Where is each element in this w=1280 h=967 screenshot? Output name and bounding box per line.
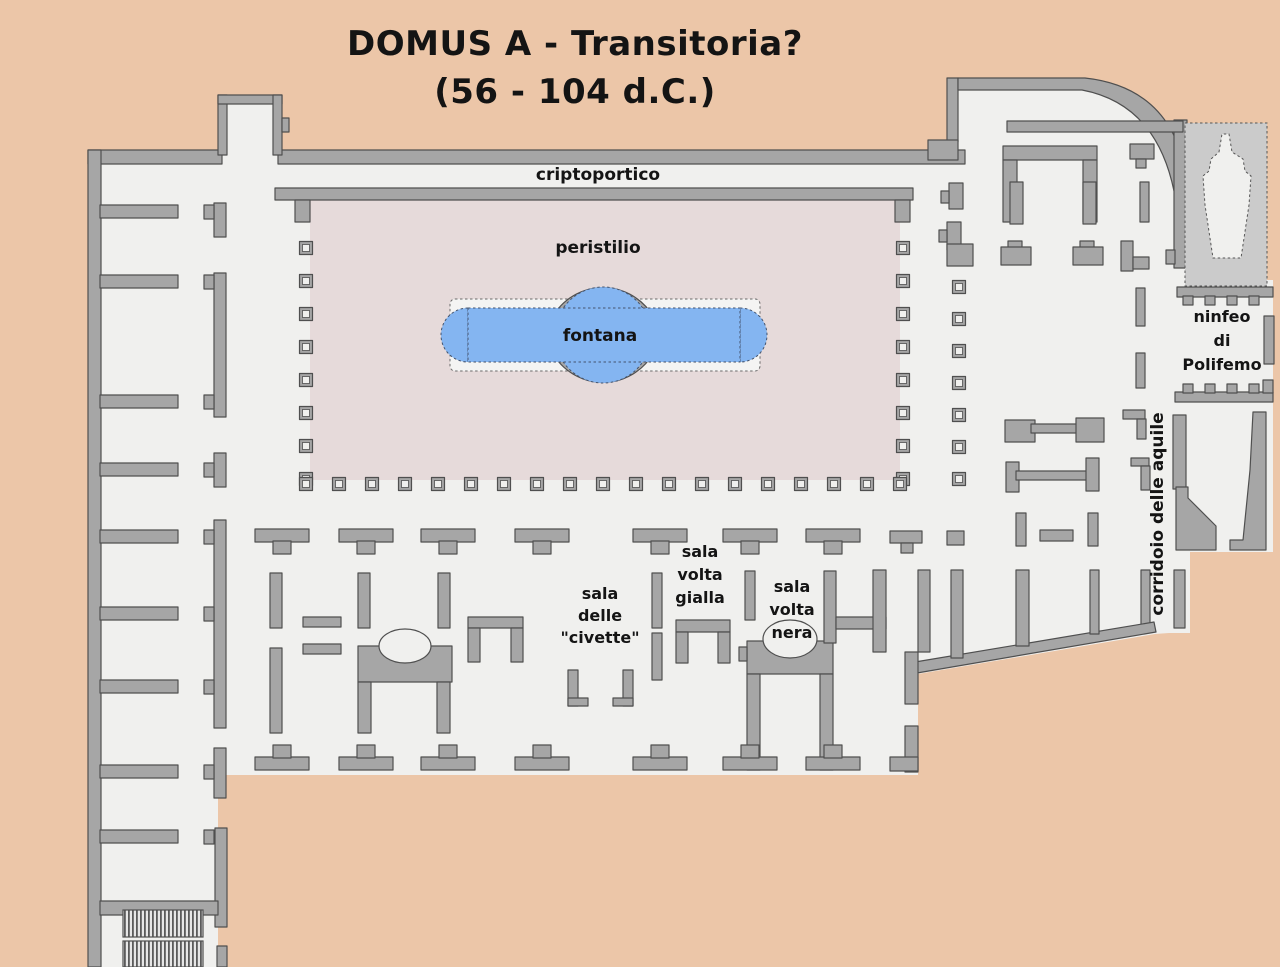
wall-wing-bar [1007,121,1183,132]
plan-title-line1: DOMUS A - Transitoria? [347,24,803,64]
t-pillar-top-stem [651,541,669,554]
t-pillar-top-bar [515,529,569,542]
pillar [890,531,922,543]
wall-cryptoporticus-south [275,188,913,200]
wall-cren-tooth [1205,296,1215,305]
doorway-nub [204,275,214,289]
t-pillar-bottom-stem [273,745,291,758]
wall-cren-tooth [1249,384,1259,393]
wall-annex-nub [282,118,289,132]
t-pillar-top-bar [421,529,475,542]
wall-bracket [468,617,523,628]
doorway-nub [204,765,214,779]
column-socket [534,481,541,488]
pillar [947,244,973,266]
column-socket [956,412,963,419]
label-line: nera [772,623,813,642]
pillar [1088,513,1098,546]
column-socket [897,481,904,488]
wall-room [745,571,755,620]
wall-room [824,571,836,643]
stair-flight-upper [123,910,203,937]
column-socket [956,476,963,483]
pillar [1136,353,1145,388]
wall-cren-tooth [1249,296,1259,305]
wall-annex-east [273,95,282,155]
column-socket [303,311,310,318]
wall-bracket [468,628,480,662]
wall-bracket [676,620,730,632]
pillar [939,230,947,242]
doorway-nub [204,205,214,219]
wall-cren-end [1263,380,1273,393]
pillar [1001,247,1031,265]
pillar [1123,410,1145,419]
t-pillar-bottom-stem [651,745,669,758]
column-socket [900,443,907,450]
pillar [1010,182,1023,224]
wall-room [270,573,282,628]
column-socket [303,410,310,417]
room-divider-wall [100,395,178,408]
column-socket [956,348,963,355]
doorway-nub [204,530,214,544]
wall-spine [214,203,226,237]
label-line: sala [774,577,811,596]
column-socket [765,481,772,488]
t-pillar-bottom-bar [633,757,687,770]
doorway-nub [204,395,214,409]
column-socket [303,344,310,351]
wall-L [568,698,588,706]
doorway-nub [204,607,214,621]
room-divider-wall [100,830,178,843]
label-line: delle [578,606,622,625]
t-pillar-bottom-bar [339,757,393,770]
stair-flight-lower [123,941,203,967]
t-pillar-top-stem [824,541,842,554]
t-pillar-top-stem [273,541,291,554]
column-socket [666,481,673,488]
t-pillar-top-bar [633,529,687,542]
column-socket [864,481,871,488]
floor-plan-canvas: DOMUS A - Transitoria? (56 - 104 d.C.) c… [0,0,1280,967]
wall-room [1090,570,1099,634]
pillar [949,183,963,209]
column-socket [900,377,907,384]
t-pillar-bottom-bar [421,757,475,770]
wall-room [270,648,282,733]
column-socket [956,444,963,451]
column-socket [600,481,607,488]
wall-apse-leg [437,682,450,733]
label-line: gialla [675,588,725,607]
pillar [1073,247,1103,265]
wall-L [613,698,633,706]
column-socket [303,443,310,450]
t-pillar-bottom-bar [255,757,309,770]
wall-spine [214,748,226,798]
room-divider-wall [100,530,178,543]
wall-room [652,633,662,680]
column-socket [501,481,508,488]
pillar [1174,570,1185,628]
wall-table [1076,418,1104,442]
room-divider-wall [100,275,178,288]
apse-arch-notch [379,629,431,663]
wall-h [1086,458,1099,491]
column-socket [435,481,442,488]
pillar [1130,144,1154,159]
wall-spine [214,453,226,487]
pillar [1083,182,1096,224]
wall-north-west-segment [88,150,222,164]
t-pillar-bottom-stem [439,745,457,758]
column-socket [303,278,310,285]
wall-portico-stub-east [895,200,910,222]
wall-cren-tooth [1205,384,1215,393]
column-socket [732,481,739,488]
column-socket [900,410,907,417]
column-socket [303,245,310,252]
column-socket [303,481,310,488]
wall-se [890,757,918,771]
label-line: Polifemo [1182,355,1261,374]
t-pillar-top-stem [741,541,759,554]
wall-bracket [511,628,523,662]
wall-room [652,573,662,628]
wall-ninfeo-east [1264,316,1274,364]
label-peristilio: peristilio [555,238,640,258]
wall-room [438,573,450,628]
label-line: volta [769,600,814,619]
room-divider-wall [100,205,178,218]
pillar [947,531,964,545]
label-line: ninfeo [1193,307,1250,326]
column-socket [798,481,805,488]
floor-left-wing [88,150,218,967]
t-pillar-bottom-stem [533,745,551,758]
t-pillar-top-bar [339,529,393,542]
pillar [1040,530,1073,541]
wall-west-outer [88,150,101,967]
wall-pi-top [1003,146,1097,160]
label-corridoio-aquile: corridoio delle aquile [1148,412,1168,615]
column-socket [402,481,409,488]
wall-bracket [718,632,730,663]
wall-wing-west [947,78,958,142]
wall-table [1031,424,1081,433]
column-socket [831,481,838,488]
column-socket [900,245,907,252]
label-line: di [1214,331,1231,350]
column-socket [567,481,574,488]
column-socket [956,380,963,387]
wall-se [905,652,918,704]
doorway-nub [204,830,214,844]
column-socket [336,481,343,488]
column-socket [633,481,640,488]
label-line: volta [677,565,722,584]
wall-spine [214,273,226,417]
wall-room [1016,570,1029,646]
t-pillar-top-bar [723,529,777,542]
pillar [1016,513,1026,546]
wall-room [918,570,930,652]
label-line: sala [582,584,619,603]
wall-cren-tooth [1183,384,1193,393]
t-pillar-top-stem [357,541,375,554]
wall-cren-tooth [1227,296,1237,305]
column-socket [900,344,907,351]
room-divider-wall [100,680,178,693]
wall-room [303,617,341,627]
t-pillar-top-stem [439,541,457,554]
t-pillar-bottom-bar [515,757,569,770]
wall-room [951,570,963,658]
plan-title-line2: (56 - 104 d.C.) [434,72,716,112]
column-socket [956,284,963,291]
column-socket [900,278,907,285]
t-pillar-bottom-stem [741,745,759,758]
doorway-nub [204,680,214,694]
wall-wing-step [928,140,958,160]
wall-apse-nub [739,647,747,661]
pillar [901,543,913,553]
column-socket [956,316,963,323]
doorway-nub [204,463,214,477]
wall-corridor-east [1173,415,1186,489]
t-pillar-bottom-stem [357,745,375,758]
pillar [1121,241,1133,271]
label-line: sala [682,542,719,561]
pillar [1140,182,1149,222]
column-socket [468,481,475,488]
wall-room [358,573,370,628]
t-pillar-top-bar [806,529,860,542]
wall-cren-tooth [1183,296,1193,305]
wall-portico-stub-west [295,200,310,222]
pillar [1131,458,1149,466]
t-pillar-top-bar [255,529,309,542]
t-pillar-bottom-bar [806,757,860,770]
room-divider-wall [100,765,178,778]
pillar [1133,257,1149,269]
polifemo-niche-area [1185,123,1267,286]
wall-room [873,570,886,652]
pillar [941,191,949,203]
column-socket [699,481,706,488]
column-socket [303,377,310,384]
t-pillar-bottom-bar [723,757,777,770]
wall-bracket [676,632,688,663]
t-pillar-top-stem [533,541,551,554]
pillar [1136,288,1145,326]
room-divider-wall [100,463,178,476]
wall-room [303,644,341,654]
label-line: "civette" [560,628,639,647]
room-divider-wall [100,607,178,620]
label-criptoportico: criptoportico [536,165,660,185]
wall-spine [217,946,227,967]
label-fontana: fontana [563,326,637,346]
label-sala-volta-gialla: sala volta gialla [675,542,725,607]
wall-spine [214,520,226,728]
wall-apse-leg [358,682,371,733]
wall-h [1016,471,1090,480]
pillar [1137,419,1146,439]
pillar [1136,159,1146,168]
column-socket [900,311,907,318]
pillar [1166,250,1175,264]
t-pillar-bottom-stem [824,745,842,758]
wall-north-main [278,150,965,164]
column-socket [369,481,376,488]
label-sala-volta-nera: sala volta nera [769,577,814,642]
wall-cren-tooth [1227,384,1237,393]
